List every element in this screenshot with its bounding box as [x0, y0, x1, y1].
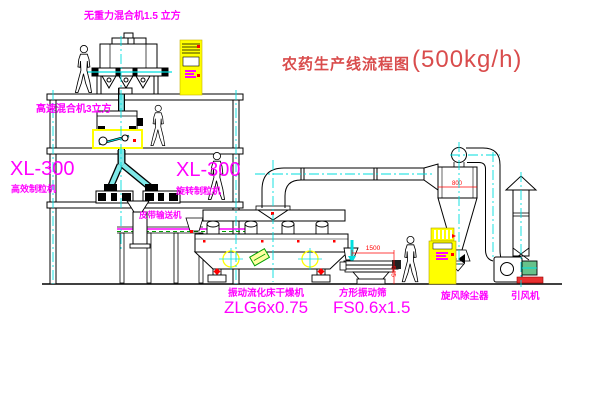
vibrating-screen: 1500 545: [340, 240, 401, 284]
control-cabinet-top: [180, 40, 202, 95]
label-granulator-left-name: 高效制粒机: [11, 185, 56, 194]
title-chinese: 农药生产线流程图: [282, 53, 410, 74]
exhaust-duct: [262, 164, 438, 208]
control-cabinet-bottom: [429, 228, 456, 284]
cyclone-dimension-label: 800: [452, 181, 463, 187]
label-granulator-left-model: XL-300: [10, 159, 75, 179]
label-high-speed-mixer: 高速混合机3立方: [36, 105, 112, 115]
granulator-left: [96, 184, 133, 203]
label-belt-conveyor: 皮带输送机: [139, 211, 182, 220]
y-distribution-pipe: [110, 150, 151, 188]
title-capacity: (500kg/h): [412, 46, 522, 74]
person-figure-4: [402, 236, 418, 281]
fluid-bed-dryer: [195, 206, 358, 282]
gravity-free-mixer: [86, 33, 172, 94]
high-speed-mixer: [93, 111, 143, 148]
label-screen-model: FS0.6x1.5: [333, 299, 411, 316]
screen-length-dimension: 1500: [366, 245, 381, 252]
dryer-foot-left: [208, 268, 226, 282]
person-figure-1: [75, 45, 91, 92]
screen-height-dimension: 545: [390, 266, 397, 277]
granulator-right: [143, 184, 180, 203]
drawing-title: 农药生产线流程图 (500kg/h): [282, 46, 522, 74]
label-granulator-right-model: XL-300: [176, 160, 241, 180]
label-dryer-model: ZLG6x0.75: [224, 299, 308, 316]
dryer-foot-right: [312, 268, 330, 282]
label-fan-name: 引风机: [511, 292, 540, 302]
label-gravity-free-mixer: 无重力混合机1.5 立方: [84, 12, 181, 22]
cad-flow-diagram: 800: [0, 0, 600, 403]
induced-draft-fan: [494, 257, 543, 283]
person-figure-2: [151, 105, 165, 145]
label-cyclone-name: 旋风除尘器: [441, 292, 489, 302]
label-granulator-right-name: 旋转制粒机: [176, 187, 221, 196]
